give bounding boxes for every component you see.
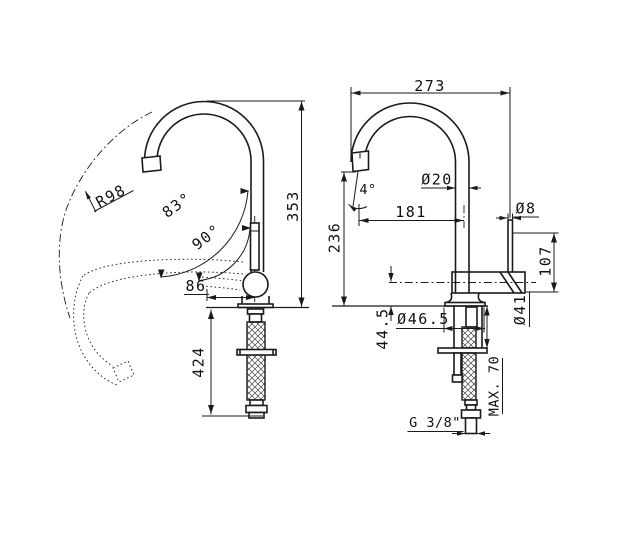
dim-base-44-5: 44.5: [374, 266, 394, 350]
lever-slot: [251, 223, 260, 270]
dim-label-273: 273: [414, 77, 446, 95]
supply-hose-front: [247, 322, 265, 400]
faucet-dimension-drawing: 83° 90° R98 353: [0, 0, 634, 539]
technical-drawing-sheet: 83° 90° R98 353: [0, 0, 634, 539]
dim-label-44-5: 44.5: [374, 307, 392, 349]
side-faucet-outline: [332, 103, 536, 434]
dim-body-dia-41: Ø41: [511, 293, 530, 328]
dim-label-max70: MAX. 70: [487, 356, 503, 416]
phantom-spout-tip: [113, 361, 134, 382]
dim-label-4: 4°: [359, 182, 376, 198]
front-view: 83° 90° R98 353: [59, 101, 309, 418]
spout-arch-outer: [145, 102, 264, 161]
dim-label-r98: R98: [93, 181, 129, 212]
spout-outlet-tip: [142, 156, 161, 172]
mounting-bracket-front: [237, 350, 276, 356]
dim-label-83: 83°: [159, 188, 195, 221]
dim-label-107: 107: [537, 245, 555, 277]
dim-label-86: 86: [185, 277, 206, 295]
dim-label-181: 181: [395, 203, 427, 221]
dim-label-g38: G 3/8": [409, 415, 461, 431]
dim-radius-r98: R98: [85, 181, 134, 212]
dim-label-o20: Ø20: [421, 171, 453, 189]
ball-joint: [243, 272, 268, 297]
dim-reach-181: 181: [359, 203, 464, 228]
hose-end-front: [250, 400, 263, 406]
dim-tube-dia-20: Ø20: [421, 171, 481, 191]
dim-label-o41: Ø41: [511, 294, 529, 326]
dim-label-353: 353: [284, 190, 302, 222]
side-arch-inner: [365, 117, 456, 163]
mounting-stud: [454, 353, 461, 375]
dim-outlet-236: 236: [326, 172, 357, 306]
shank-connector: [466, 307, 477, 327]
swivel-envelope-arc: [59, 112, 152, 318]
dim-label-o46-5: Ø46.5: [397, 310, 450, 328]
connection-tube: [466, 418, 477, 434]
dim-label-424: 424: [190, 346, 208, 378]
side-view: 273 Ø20 4° 181: [326, 77, 559, 436]
dim-label-o8: Ø8: [515, 200, 536, 218]
dim-angle-4: 4°: [349, 172, 377, 212]
dim-label-90: 90°: [189, 220, 225, 254]
dim-lever-dia-8: Ø8: [496, 200, 539, 221]
mounting-bracket-side: [438, 348, 487, 353]
dim-label-236: 236: [326, 222, 344, 254]
dim-max-70: MAX. 70: [484, 306, 502, 416]
spout-arch-inner: [157, 114, 251, 161]
base-dome: [446, 293, 452, 303]
hose-end-nut: [462, 410, 481, 418]
phantom-spout-positions: [74, 259, 243, 385]
supply-hose-side: [462, 353, 476, 400]
